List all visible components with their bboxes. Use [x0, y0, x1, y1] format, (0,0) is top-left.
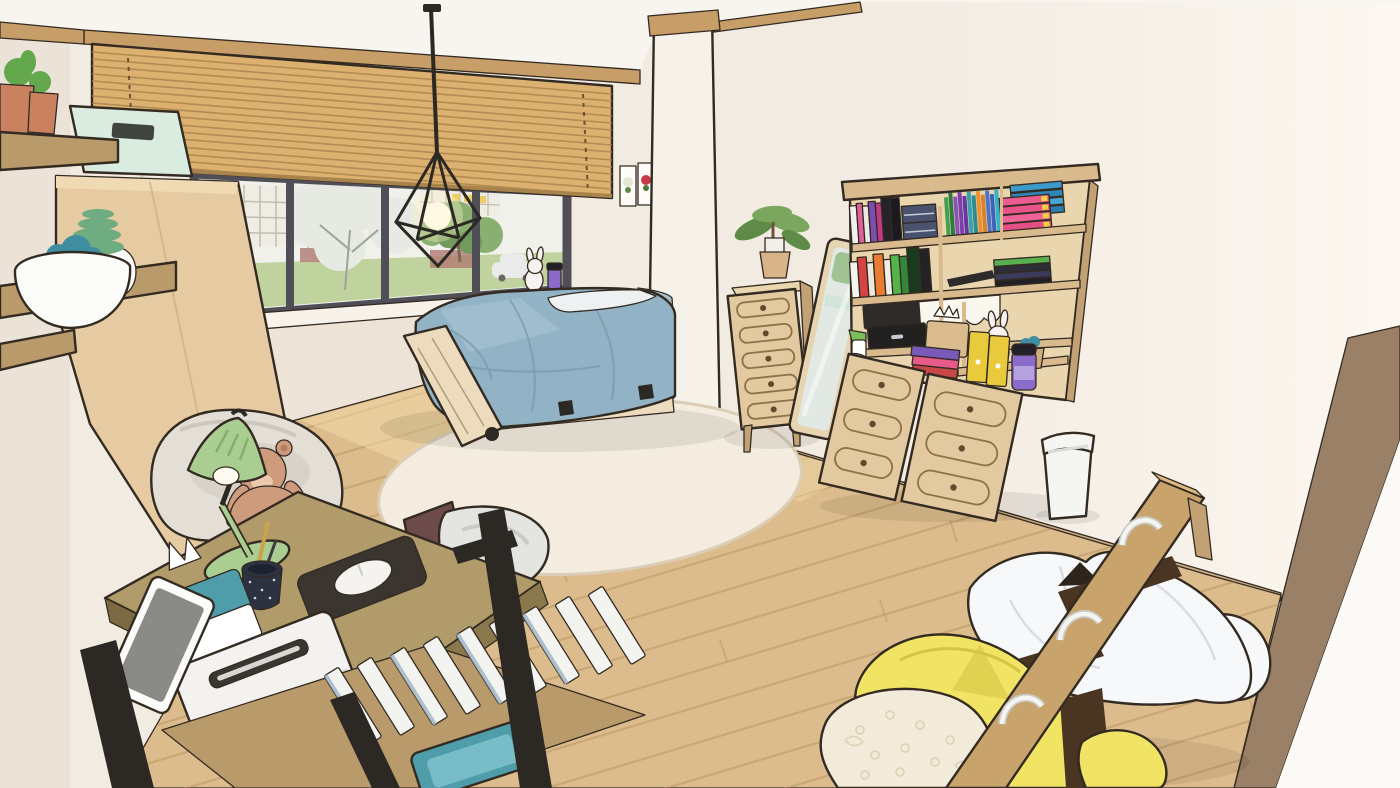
wall-prints	[620, 163, 655, 206]
white-flower-print	[623, 177, 633, 187]
bed-foot-2	[638, 384, 654, 400]
box-handle[interactable]	[111, 123, 154, 141]
divider-2	[1000, 186, 1003, 240]
room-illustration	[0, 0, 1400, 788]
purple-jar	[547, 263, 562, 289]
bedroom-scene	[0, 0, 1400, 788]
light-bulb	[423, 202, 451, 230]
yellow-binder-2	[986, 335, 1009, 386]
wall-shelf-top	[0, 132, 118, 170]
yellow-binder-1	[966, 331, 989, 382]
red-flower-print	[641, 175, 651, 185]
bed-foot-1	[558, 400, 574, 416]
plant-pot	[760, 252, 790, 278]
bed-caster	[485, 427, 499, 441]
lamp-bulb	[213, 467, 239, 485]
